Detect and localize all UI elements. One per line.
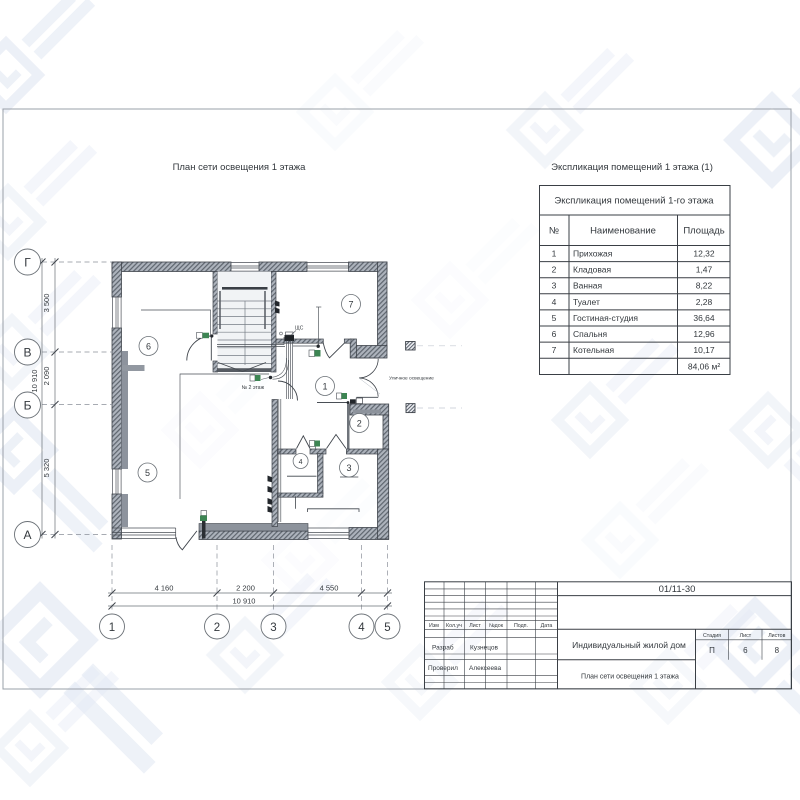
svg-text:Котельная: Котельная (573, 345, 615, 355)
svg-text:5: 5 (552, 313, 557, 323)
svg-text:Дата: Дата (541, 623, 553, 629)
svg-text:Подп.: Подп. (514, 623, 528, 629)
svg-text:План сети освещения 1 этажа: План сети освещения 1 этажа (581, 674, 679, 681)
svg-text:2: 2 (357, 419, 362, 429)
svg-text:Ванная: Ванная (573, 281, 603, 291)
svg-text:4 160: 4 160 (155, 584, 174, 593)
svg-text:1: 1 (109, 622, 115, 634)
svg-text:7: 7 (552, 345, 557, 355)
svg-text:6: 6 (552, 329, 557, 339)
svg-text:7: 7 (348, 300, 353, 310)
svg-text:2: 2 (214, 622, 220, 634)
svg-text:План сети освещения 1 этажа: План сети освещения 1 этажа (173, 162, 307, 173)
svg-text:№док: №док (489, 623, 504, 629)
svg-text:4 550: 4 550 (320, 584, 339, 593)
svg-text:10,17: 10,17 (693, 345, 715, 355)
svg-text:Площадь: Площадь (683, 226, 724, 237)
svg-text:ЩС: ЩС (295, 326, 304, 332)
svg-text:3: 3 (552, 281, 557, 291)
svg-text:1,47: 1,47 (696, 265, 713, 275)
svg-text:2,28: 2,28 (696, 297, 713, 307)
svg-text:Стадия: Стадия (703, 633, 721, 639)
svg-text:Лист: Лист (469, 623, 481, 629)
svg-text:6: 6 (743, 646, 748, 655)
svg-text:Разраб: Разраб (432, 644, 454, 652)
svg-text:3: 3 (346, 463, 351, 473)
svg-text:Уличное освещение: Уличное освещение (389, 376, 434, 382)
svg-text:12,32: 12,32 (693, 249, 715, 259)
svg-text:01/11-30: 01/11-30 (659, 584, 696, 595)
svg-text:Спальня: Спальня (573, 329, 608, 339)
svg-text:4: 4 (299, 459, 303, 466)
svg-text:А: А (23, 528, 31, 542)
svg-text:2: 2 (552, 265, 557, 275)
svg-text:Кладовая: Кладовая (573, 265, 611, 275)
svg-text:П: П (709, 646, 715, 655)
svg-text:2 090: 2 090 (42, 367, 51, 386)
svg-text:Кол.уч: Кол.уч (446, 623, 462, 629)
svg-text:Проверил: Проверил (428, 665, 458, 672)
svg-text:1: 1 (322, 382, 327, 392)
svg-text:4: 4 (552, 297, 557, 307)
svg-text:84,06 м²: 84,06 м² (688, 361, 720, 371)
svg-text:5: 5 (384, 622, 390, 634)
svg-text:10 910: 10 910 (233, 597, 256, 606)
svg-text:Г: Г (24, 256, 31, 270)
svg-text:3 500: 3 500 (42, 294, 51, 313)
svg-text:Изм: Изм (429, 623, 439, 629)
svg-text:36,64: 36,64 (693, 313, 715, 323)
svg-text:5 320: 5 320 (42, 459, 51, 478)
svg-text:3: 3 (270, 622, 276, 634)
svg-text:Листов: Листов (768, 633, 785, 639)
svg-text:№: № (549, 226, 559, 237)
svg-text:Б: Б (24, 399, 32, 413)
svg-text:2 200: 2 200 (236, 584, 255, 593)
svg-text:12,96: 12,96 (693, 329, 715, 339)
svg-text:Экспликация помещений 1-го эта: Экспликация помещений 1-го этажа (554, 196, 714, 207)
svg-text:5: 5 (145, 468, 150, 478)
svg-text:Экспликация помещений 1 этажа: Экспликация помещений 1 этажа (1) (551, 162, 713, 173)
svg-text:Наименование: Наименование (590, 226, 656, 237)
svg-text:Туалет: Туалет (573, 297, 600, 307)
svg-text:8,22: 8,22 (696, 281, 713, 291)
svg-text:Индивидуальный жилой дом: Индивидуальный жилой дом (572, 640, 686, 650)
svg-text:Кузнецов: Кузнецов (470, 645, 498, 652)
svg-text:4: 4 (358, 622, 365, 634)
svg-text:6: 6 (146, 342, 151, 352)
svg-text:Алексеева: Алексеева (469, 665, 502, 672)
svg-text:№ 2 этаж: № 2 этаж (242, 385, 265, 391)
svg-text:В: В (23, 346, 31, 360)
svg-text:Лист: Лист (740, 633, 752, 639)
svg-text:1: 1 (552, 249, 557, 259)
svg-text:Гостиная-студия: Гостиная-студия (573, 313, 638, 323)
svg-text:10 910: 10 910 (30, 370, 39, 393)
svg-text:Прихожая: Прихожая (573, 249, 613, 259)
svg-text:8: 8 (775, 646, 780, 655)
